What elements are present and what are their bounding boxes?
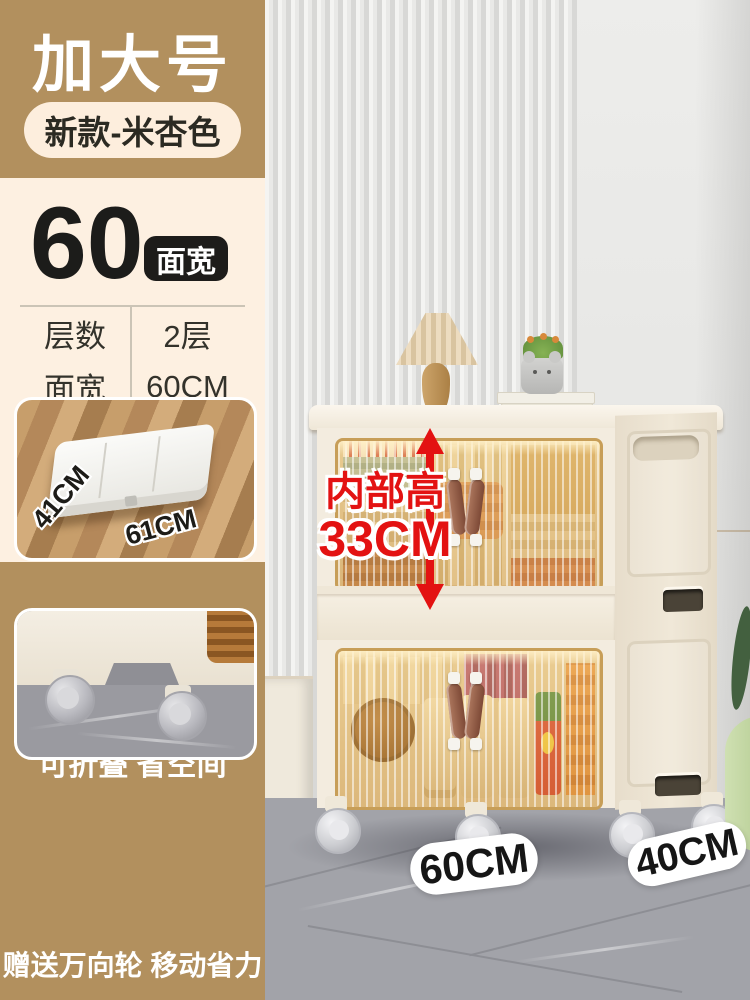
inner-height-annotation: 内部高 33CM [305, 472, 465, 564]
bear-planter [521, 358, 563, 394]
handle-clip [448, 672, 460, 684]
glass-glow [338, 651, 600, 665]
annotation-line2: 33CM [305, 514, 465, 564]
variant-pill-label: 新款-米杏色 [45, 106, 221, 154]
width-number: 60 [30, 192, 143, 294]
caster-wheel [157, 691, 207, 741]
bear-eye [547, 370, 551, 374]
leaf-tip [540, 333, 547, 340]
wheel-hub [169, 703, 191, 725]
marble-streak [77, 732, 237, 749]
box-latch [124, 495, 137, 506]
side-handle-cutout [663, 589, 703, 612]
glass-glow [338, 441, 600, 455]
wheel-cap [329, 820, 349, 840]
basket-texture [207, 611, 254, 663]
handle-clip [448, 738, 460, 750]
folded-box-photo: 41CM 61CM [14, 397, 257, 561]
wheels-caption: 赠送万向轮 移动省力 [0, 944, 265, 984]
cabinet-notch [105, 663, 179, 685]
variant-pill: 新款-米杏色 [24, 102, 241, 158]
box-groove [152, 436, 161, 491]
baseboard-panel [265, 676, 313, 809]
left-info-column: 加大号 新款-米杏色 60 面宽 层数 2层 面宽 60CM 侧深 40CM 高… [0, 0, 265, 1000]
bear-ear [549, 351, 561, 363]
marble-streak [516, 935, 695, 963]
side-grip [633, 435, 699, 461]
handle-strap [464, 478, 486, 535]
width-dimension-label: 61CM [122, 503, 200, 552]
tile-seam [308, 925, 683, 993]
side-inset-lower [627, 638, 711, 787]
wheels-photo [14, 608, 257, 760]
wheel-hub [57, 687, 79, 709]
tile-seam [469, 882, 750, 957]
spec-label: 层数 [20, 311, 130, 356]
handle-strap [464, 682, 486, 739]
caster-wheel [45, 675, 95, 725]
leaf-tip [527, 336, 534, 343]
handle-clip [470, 738, 482, 750]
box-groove [98, 443, 107, 498]
cabinet-side-panel [615, 412, 717, 810]
width-badge: 面宽 [144, 236, 228, 281]
wheel-tire [315, 808, 361, 854]
caster-wheel [313, 796, 359, 854]
size-tag-title: 加大号 [0, 14, 265, 104]
handle-clip [470, 468, 482, 480]
bear-eye [533, 370, 537, 374]
annotation-line1: 内部高 [305, 472, 465, 512]
header-panel: 加大号 新款-米杏色 [0, 0, 265, 178]
width-badge-label: 面宽 [156, 237, 216, 281]
bear-ear [523, 351, 535, 363]
spec-row-layers: 层数 2层 [20, 307, 245, 360]
leaf-tip [552, 336, 559, 343]
floor-width-label: 60CM [417, 834, 531, 894]
tier-divider-band [317, 586, 615, 640]
spec-value: 2层 [130, 311, 245, 356]
lower-door-handle [446, 672, 486, 750]
product-scene: 内部高 33CM 60CM 40CM [265, 0, 750, 1000]
handle-clip [470, 672, 482, 684]
handle-clip [470, 534, 482, 546]
